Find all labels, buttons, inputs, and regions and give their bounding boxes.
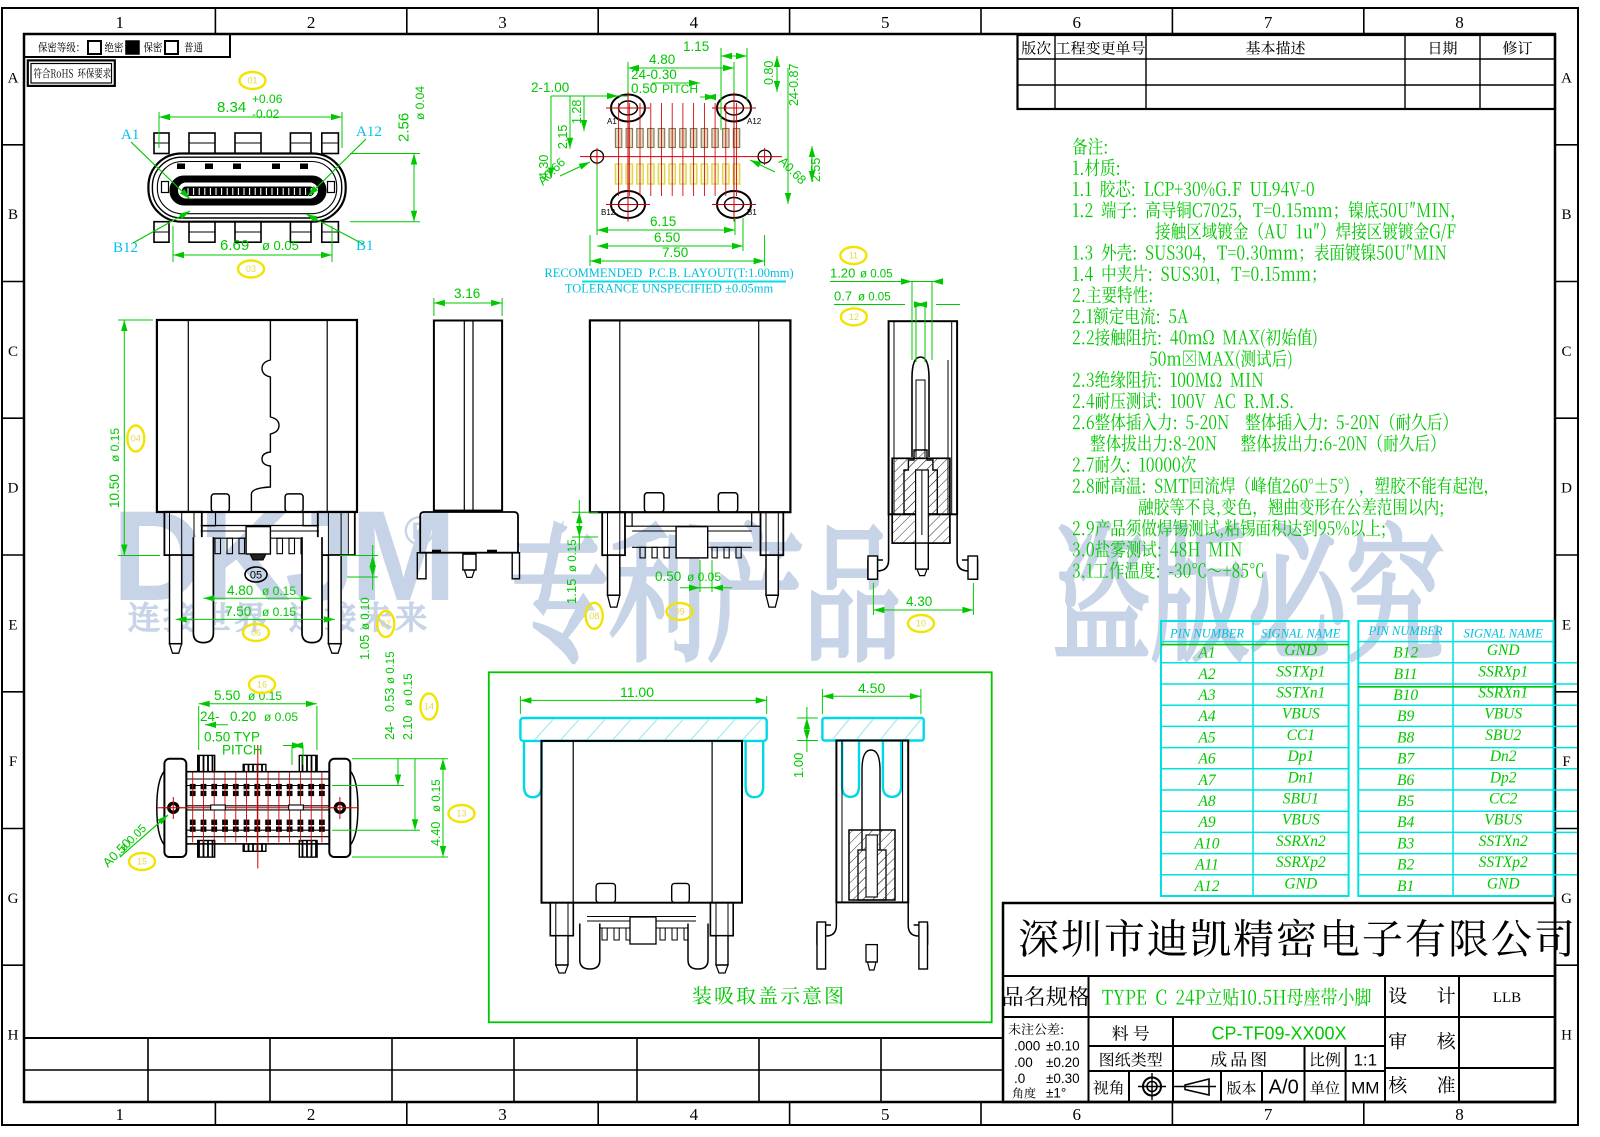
svg-text:.0: .0 [1014, 1071, 1025, 1086]
svg-text:+0.06: +0.06 [252, 92, 283, 106]
svg-text:B8: B8 [1397, 729, 1414, 746]
svg-text:0.50: 0.50 [631, 81, 657, 96]
svg-text:±0.10: ±0.10 [1046, 1039, 1080, 1054]
svg-text:SSTXp2: SSTXp2 [1479, 854, 1528, 871]
svg-text:5.50: 5.50 [214, 688, 240, 703]
svg-text:09: 09 [675, 607, 685, 617]
svg-text:5: 5 [881, 1105, 890, 1124]
svg-text:8: 8 [1455, 1105, 1464, 1124]
svg-text:VBUS: VBUS [1484, 706, 1522, 723]
svg-text:Dp1: Dp1 [1286, 748, 1314, 765]
svg-text:ø 0.05: ø 0.05 [860, 269, 893, 281]
svg-text:A2: A2 [1197, 666, 1215, 683]
svg-text:SIGNAL NAME: SIGNAL NAME [1261, 627, 1341, 641]
svg-text:E: E [1562, 617, 1571, 633]
svg-text:C: C [8, 344, 18, 360]
svg-text:CC2: CC2 [1489, 791, 1518, 808]
svg-text:A: A [8, 70, 19, 86]
svg-text:B: B [1561, 207, 1571, 223]
svg-text:GND: GND [1487, 875, 1520, 892]
svg-text:VBUS: VBUS [1282, 812, 1320, 829]
svg-text:13: 13 [456, 809, 466, 819]
svg-text:A8: A8 [1197, 793, 1215, 810]
svg-text:MM: MM [1351, 1079, 1379, 1098]
svg-text:-0.02: -0.02 [252, 107, 280, 121]
svg-text:4.40: 4.40 [429, 822, 443, 846]
svg-text:GND: GND [1487, 642, 1520, 659]
svg-text:SSRXn2: SSRXn2 [1276, 833, 1326, 850]
svg-text:1: 1 [115, 13, 124, 32]
svg-text:A: A [1561, 70, 1572, 86]
svg-text:PITCH: PITCH [662, 82, 698, 96]
svg-text:A1: A1 [121, 127, 139, 143]
svg-text:6.69: 6.69 [220, 237, 249, 254]
svg-text:ø 0.15: ø 0.15 [431, 779, 443, 812]
svg-text:4.80: 4.80 [227, 583, 253, 598]
svg-text:B7: B7 [1397, 751, 1415, 768]
svg-text:4.80: 4.80 [649, 52, 675, 67]
svg-text:ø 0.15: ø 0.15 [403, 673, 415, 706]
svg-text:14: 14 [424, 702, 434, 712]
svg-text:G: G [8, 891, 19, 907]
svg-text:B1: B1 [356, 238, 374, 254]
svg-text:.000: .000 [1014, 1039, 1040, 1054]
svg-text:PITCH: PITCH [222, 743, 263, 758]
svg-text:4.30: 4.30 [906, 594, 932, 609]
svg-text:TOLERANCE UNSPECIFIED ±0.05mm: TOLERANCE UNSPECIFIED ±0.05mm [565, 282, 774, 296]
svg-text:B5: B5 [1397, 793, 1414, 810]
svg-text:SSTXn2: SSTXn2 [1479, 833, 1528, 850]
svg-text:ø 0.15: ø 0.15 [108, 428, 122, 462]
svg-text:E: E [8, 617, 17, 633]
svg-text:A9: A9 [1197, 814, 1215, 831]
svg-text:±1°: ±1° [1046, 1086, 1066, 1101]
svg-text:SSTXn1: SSTXn1 [1276, 685, 1325, 702]
svg-text:ø 0.15: ø 0.15 [385, 651, 397, 684]
svg-text:A1: A1 [607, 117, 617, 126]
svg-text:4: 4 [690, 1105, 699, 1124]
svg-text:A10: A10 [1194, 835, 1220, 852]
svg-text:.00: .00 [1014, 1055, 1033, 1070]
svg-text:Dn1: Dn1 [1286, 769, 1314, 786]
svg-text:B1: B1 [747, 208, 757, 217]
svg-text:5: 5 [881, 13, 890, 32]
svg-text:2.56: 2.56 [396, 113, 413, 142]
svg-text:1:1: 1:1 [1353, 1051, 1377, 1070]
svg-text:SSTXp1: SSTXp1 [1276, 663, 1325, 680]
svg-text:24-: 24- [383, 722, 397, 740]
svg-text:C: C [1561, 344, 1571, 360]
svg-text:2: 2 [307, 1105, 316, 1124]
svg-text:6: 6 [1072, 1105, 1081, 1124]
svg-text:07: 07 [381, 619, 391, 629]
svg-text:B11: B11 [1394, 666, 1418, 683]
svg-text:15: 15 [137, 857, 147, 867]
svg-text:6.50: 6.50 [654, 230, 680, 245]
svg-text:0.20: 0.20 [230, 709, 256, 724]
svg-text:6: 6 [1072, 13, 1081, 32]
svg-text:1.00: 1.00 [791, 753, 806, 778]
svg-text:GND: GND [1284, 642, 1317, 659]
svg-text:B1: B1 [1397, 878, 1414, 895]
svg-text:01: 01 [247, 76, 257, 86]
svg-text:B12: B12 [1393, 645, 1418, 662]
svg-text:1.20: 1.20 [830, 266, 855, 281]
svg-text:A12: A12 [1194, 878, 1220, 895]
svg-text:2: 2 [307, 13, 316, 32]
svg-text:SBU1: SBU1 [1283, 791, 1319, 808]
svg-text:A6: A6 [1197, 751, 1215, 768]
svg-text:F: F [1562, 754, 1570, 770]
svg-text:A12: A12 [356, 124, 382, 140]
svg-text:1: 1 [115, 1105, 124, 1124]
svg-text:0.50: 0.50 [655, 569, 681, 584]
svg-text:B6: B6 [1397, 772, 1414, 789]
svg-text:F: F [9, 754, 17, 770]
svg-text:3.16: 3.16 [454, 286, 480, 301]
svg-text:11: 11 [849, 251, 858, 261]
svg-text:SSRXp1: SSRXp1 [1478, 663, 1528, 680]
svg-text:PIN NUMBER: PIN NUMBER [1368, 624, 1443, 638]
svg-text:2.10: 2.10 [401, 716, 415, 740]
svg-text:16: 16 [257, 680, 267, 690]
svg-text:3: 3 [498, 13, 507, 32]
svg-text:24-0.30: 24-0.30 [631, 67, 677, 82]
svg-text:±0.20: ±0.20 [1046, 1055, 1080, 1070]
svg-text:ø 0.05: ø 0.05 [262, 238, 299, 253]
svg-text:ø 0.15: ø 0.15 [262, 584, 296, 598]
svg-text:B2: B2 [1397, 857, 1414, 874]
svg-text:2-1.00: 2-1.00 [531, 80, 569, 95]
svg-text:4.50: 4.50 [858, 680, 885, 696]
svg-text:0.7: 0.7 [834, 289, 852, 304]
svg-text:06: 06 [251, 628, 261, 638]
svg-text:7.50: 7.50 [225, 604, 251, 619]
svg-text:24-: 24- [200, 709, 220, 724]
svg-text:A12: A12 [747, 117, 762, 126]
svg-text:7: 7 [1264, 13, 1273, 32]
svg-text:A/0: A/0 [1269, 1077, 1299, 1099]
svg-text:24-0.87: 24-0.87 [787, 64, 801, 106]
svg-text:ø 0.05: ø 0.05 [687, 570, 721, 584]
svg-text:SSRXn1: SSRXn1 [1478, 685, 1528, 702]
svg-text:G: G [1561, 891, 1572, 907]
svg-text:A5: A5 [1197, 729, 1215, 746]
svg-text:A11: A11 [1194, 857, 1219, 874]
svg-text:4: 4 [690, 13, 699, 32]
svg-text:2.15: 2.15 [556, 125, 570, 149]
svg-text:Dn2: Dn2 [1489, 748, 1517, 765]
svg-text:ø 0.05: ø 0.05 [858, 292, 891, 304]
svg-text:ø 0.05: ø 0.05 [264, 710, 298, 724]
svg-text:B: B [8, 207, 18, 223]
svg-text:CP-TF09-XX00X: CP-TF09-XX00X [1211, 1024, 1346, 1044]
svg-text:LLB: LLB [1493, 990, 1521, 1006]
svg-text:ø 0.15: ø 0.15 [262, 605, 296, 619]
svg-text:SIGNAL NAME: SIGNAL NAME [1464, 627, 1544, 641]
svg-text:1.05: 1.05 [357, 635, 372, 660]
svg-text:Dp2: Dp2 [1489, 769, 1517, 786]
svg-text:RECOMMENDED P.C.B. LAYOUT(T:1: RECOMMENDED P.C.B. LAYOUT(T:1.00mm) [544, 266, 793, 280]
svg-text:SBU2: SBU2 [1485, 727, 1521, 744]
svg-text:B4: B4 [1397, 814, 1414, 831]
svg-text:A1: A1 [1197, 645, 1215, 662]
svg-text:0.53: 0.53 [383, 688, 397, 712]
svg-text:3: 3 [498, 1105, 507, 1124]
svg-text:A7: A7 [1197, 772, 1216, 789]
svg-text:10: 10 [916, 619, 926, 629]
svg-text:12: 12 [849, 312, 859, 322]
svg-text:03: 03 [246, 264, 256, 274]
svg-text:05: 05 [250, 570, 262, 582]
svg-text:11.00: 11.00 [620, 684, 654, 700]
svg-text:VBUS: VBUS [1282, 706, 1320, 723]
svg-text:B12: B12 [601, 208, 616, 217]
svg-text:10.50: 10.50 [107, 474, 122, 508]
svg-text:ø 0.15: ø 0.15 [567, 539, 579, 572]
svg-text:04: 04 [131, 434, 141, 444]
svg-text:B3: B3 [1397, 835, 1414, 852]
svg-text:6.15: 6.15 [650, 214, 676, 229]
svg-text:8.34: 8.34 [217, 99, 246, 116]
svg-text:8: 8 [1455, 13, 1464, 32]
svg-text:PIN NUMBER: PIN NUMBER [1169, 627, 1244, 641]
svg-text:D: D [1561, 481, 1572, 497]
svg-text:7.50: 7.50 [662, 245, 688, 260]
svg-text:A4: A4 [1197, 708, 1215, 725]
svg-text:D: D [8, 481, 19, 497]
svg-text:A3: A3 [1197, 687, 1215, 704]
svg-text:1.15: 1.15 [564, 579, 579, 604]
svg-text:1.15: 1.15 [683, 39, 709, 54]
svg-text:SSRXp2: SSRXp2 [1276, 854, 1326, 871]
svg-text:7: 7 [1264, 1105, 1273, 1124]
svg-text:±0.30: ±0.30 [1046, 1071, 1080, 1086]
svg-text:VBUS: VBUS [1484, 812, 1522, 829]
svg-text:H: H [8, 1028, 19, 1044]
svg-text:CC1: CC1 [1287, 727, 1315, 744]
svg-text:ø 0.10: ø 0.10 [360, 597, 372, 630]
svg-text:GND: GND [1284, 875, 1317, 892]
svg-text:B9: B9 [1397, 708, 1414, 725]
svg-text:ø 0.04: ø 0.04 [413, 86, 427, 120]
svg-text:08: 08 [589, 611, 599, 621]
svg-text:H: H [1561, 1028, 1572, 1044]
svg-text:B10: B10 [1393, 687, 1418, 704]
